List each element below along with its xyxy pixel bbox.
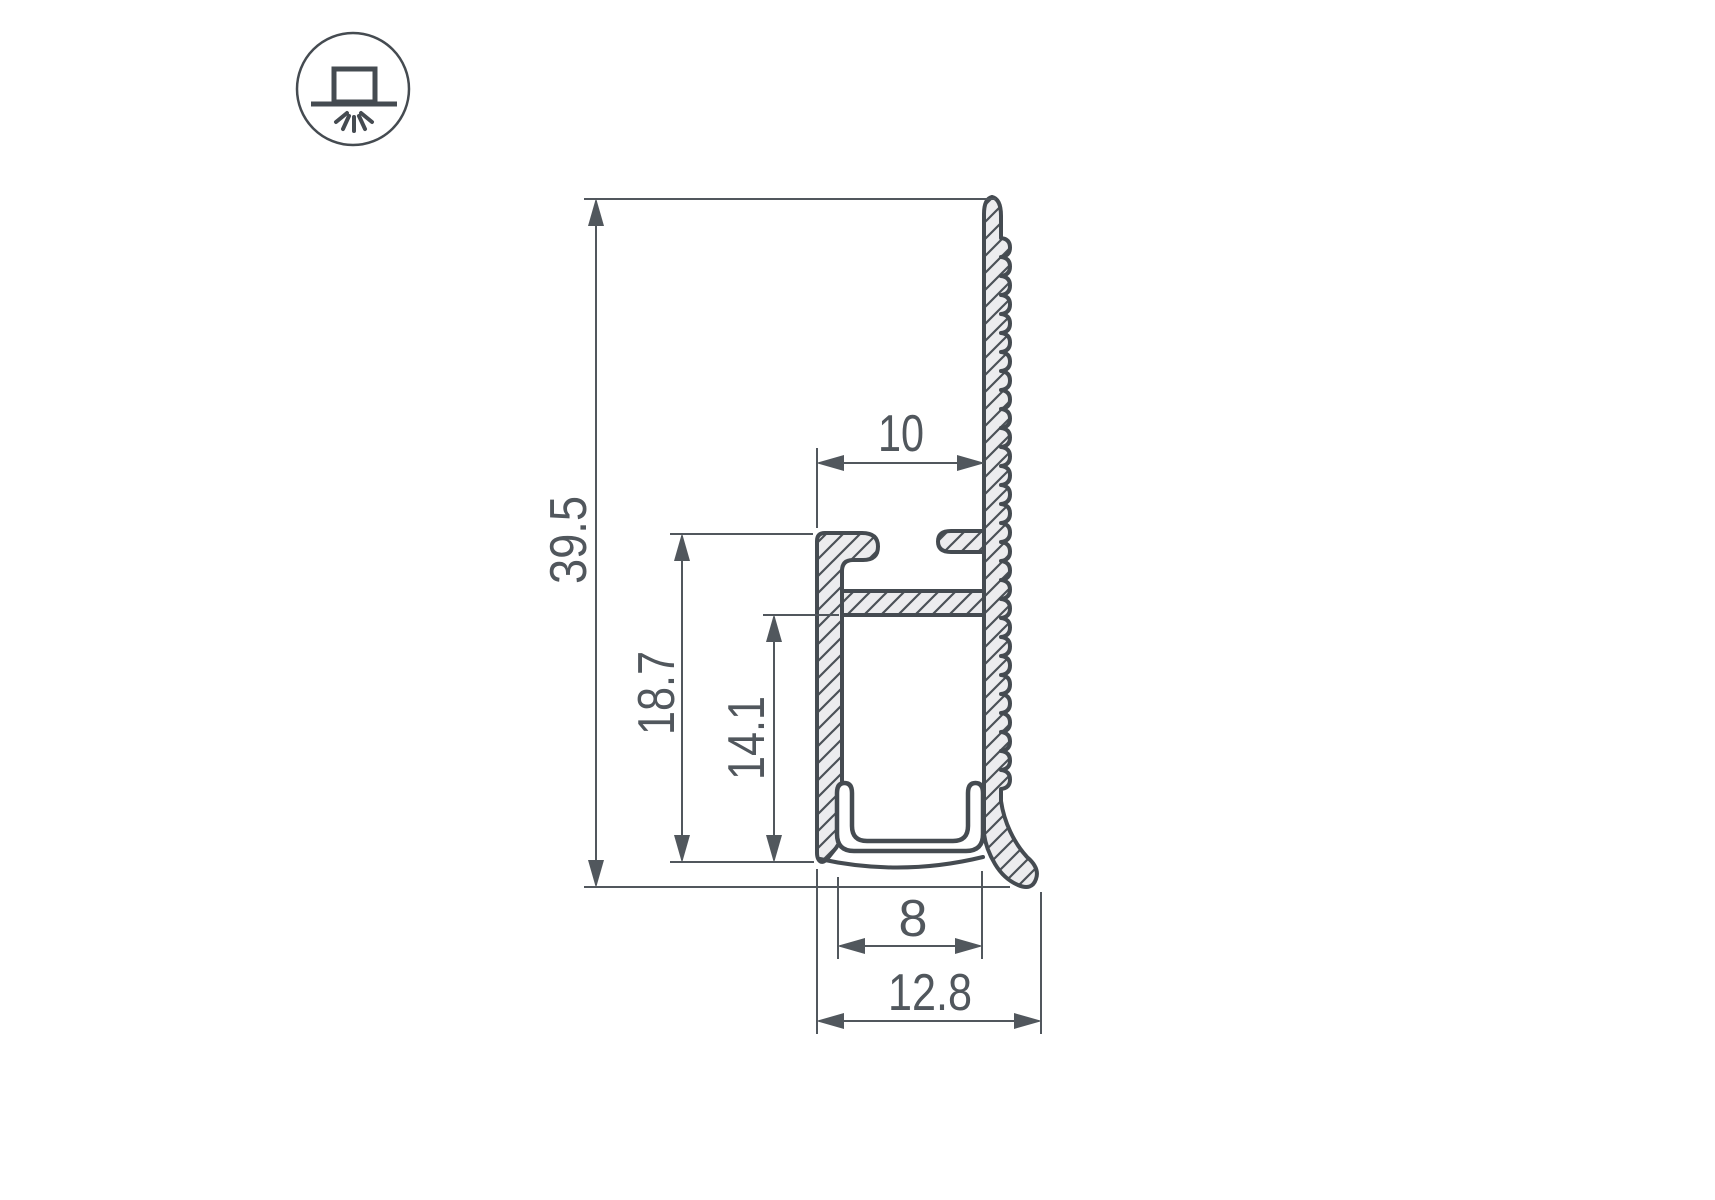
inner-channel-path (837, 783, 983, 851)
profile-cross-section (817, 197, 1037, 887)
fin-path (984, 197, 1037, 887)
surface-mount-icon (297, 33, 409, 145)
dimension-channel-width: 8 (837, 871, 983, 959)
dimension-label-channel-width: 8 (899, 890, 928, 948)
dimension-label-channel-depth: 14.1 (718, 696, 776, 780)
dimension-label-overall-width: 12.8 (888, 964, 972, 1022)
web-path (842, 591, 984, 615)
icon-light-rays (336, 113, 372, 131)
dimension-overall-width: 12.8 (816, 869, 1042, 1034)
technical-drawing-page: 39.5 18.7 14.1 10 (0, 0, 1715, 1200)
profile-cross-section-drawing: 39.5 18.7 14.1 10 (0, 0, 1715, 1200)
bottom-face-path (820, 857, 983, 868)
icon-profile-square (334, 69, 375, 102)
dimension-label-top-width: 10 (878, 405, 924, 463)
dimension-top-width: 10 (816, 405, 985, 528)
dimension-label-overall-height: 39.5 (540, 496, 598, 584)
right-flange-path (938, 531, 984, 552)
dimension-label-body-height: 18.7 (628, 651, 686, 735)
